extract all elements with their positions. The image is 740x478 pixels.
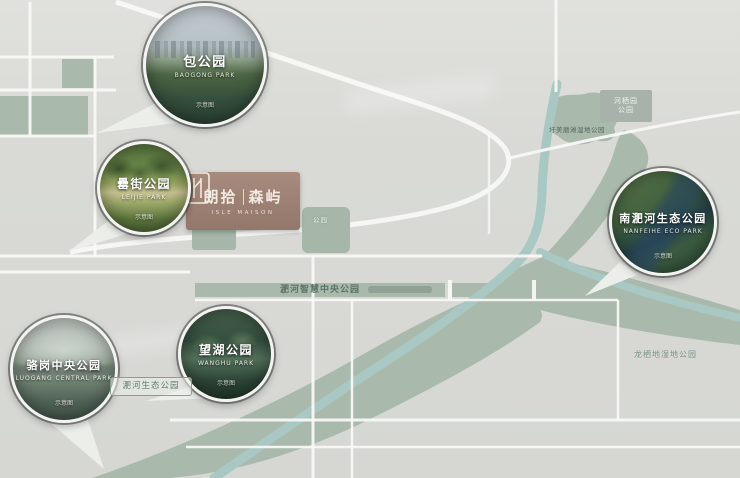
weimei-wetland-park-label: 圩美磨滩湿地公园 bbox=[549, 124, 605, 134]
park-name: 包公园 bbox=[183, 51, 227, 70]
park-name: 罍街公园 bbox=[117, 175, 171, 192]
photo-caption: 示意图 bbox=[612, 251, 714, 260]
park-patch-label: 公园 bbox=[313, 216, 328, 224]
park-name: 南淝河生态公园 bbox=[619, 210, 707, 226]
photo-caption: 示意图 bbox=[13, 398, 115, 407]
photo-caption: 示意图 bbox=[146, 100, 264, 109]
park-callout-luogang: 骆岗中央公园 LUOGANG CENTRAL PARK 示意图 bbox=[10, 315, 118, 423]
park-name-en: BAOGONG PARK bbox=[175, 72, 236, 79]
park-callout-nanfeihe: 南淝河生态公园 NANFEIHE ECO PARK 示意图 bbox=[609, 168, 717, 276]
location-map: 公园 公园 河栖园 公园 淝河智慧中央公园 淝河生态公园 龙栖地湿地公园 圩美磨… bbox=[0, 0, 740, 478]
heqiyuan-park-label-line1: 河栖园 bbox=[614, 97, 638, 106]
park-name-en: NANFEIHE ECO PARK bbox=[623, 228, 702, 235]
photo-caption: 示意图 bbox=[100, 212, 188, 221]
park-callout-baogongyuan: 包公园 BAOGONG PARK 示意图 bbox=[143, 3, 267, 127]
longqidi-wetland-park-label: 龙栖地湿地公园 bbox=[634, 349, 697, 360]
park-name-en: LEIJIE PARK bbox=[122, 194, 167, 201]
park-name: 望湖公园 bbox=[199, 341, 253, 358]
project-logo-card: 朗拾 森屿 ISLE MAISON bbox=[186, 172, 300, 230]
project-name-cn-right: 森屿 bbox=[249, 186, 283, 207]
park-callout-leijie: 罍街公园 LEIJIE PARK 示意图 bbox=[97, 141, 191, 235]
logo-divider bbox=[243, 189, 244, 205]
park-callout-wanghu: 望湖公园 WANGHU PARK 示意图 bbox=[178, 306, 274, 402]
heqiyuan-park-label-box: 河栖园 公园 bbox=[600, 90, 652, 122]
band-small-note bbox=[368, 286, 432, 293]
project-logo-text: 朗拾 森屿 ISLE MAISON bbox=[203, 186, 282, 216]
feihe-eco-park-label: 淝河生态公园 bbox=[110, 377, 192, 396]
project-name-en: ISLE MAISON bbox=[212, 210, 275, 216]
park-name: 骆岗中央公园 bbox=[26, 357, 101, 373]
photo-caption: 示意图 bbox=[181, 378, 271, 387]
park-patch-right: 公园 bbox=[302, 207, 350, 253]
park-name-en: WANGHU PARK bbox=[198, 360, 254, 367]
heqiyuan-park-label-line2: 公园 bbox=[618, 106, 634, 115]
park-name-en: LUOGANG CENTRAL PARK bbox=[16, 375, 113, 382]
